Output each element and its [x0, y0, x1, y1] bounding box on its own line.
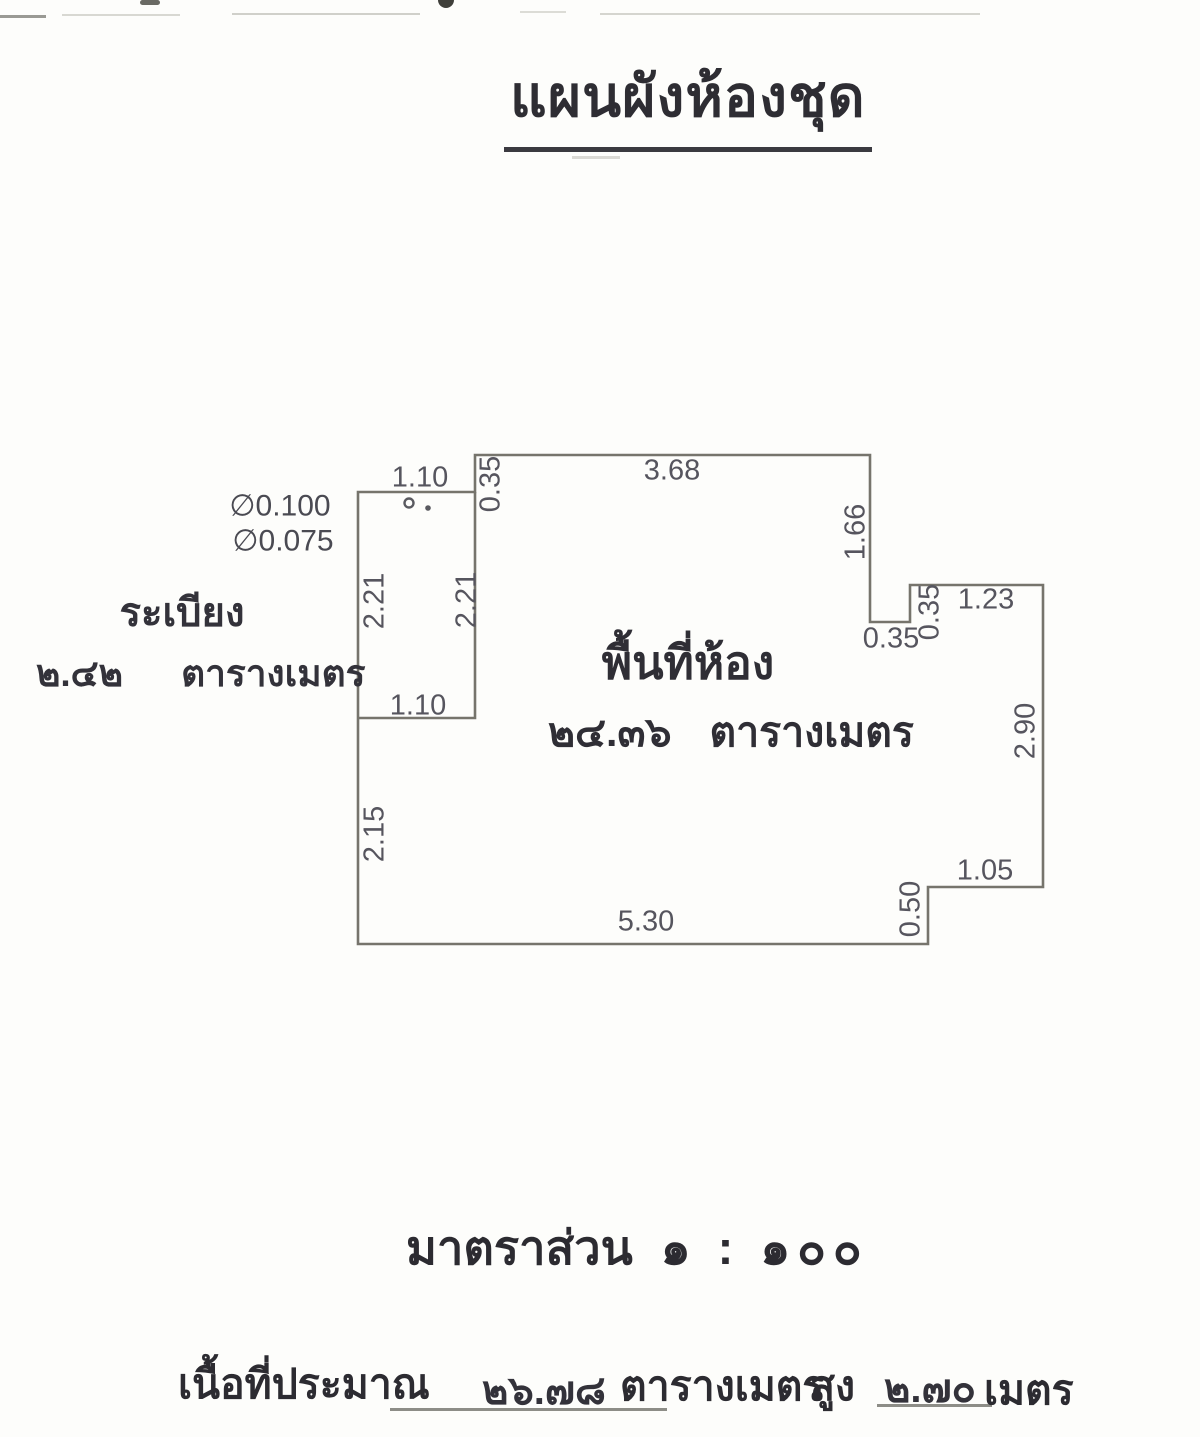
dim-balcony-left: 2.21 — [359, 573, 392, 629]
pipe-diameter-label: ∅0.100 — [229, 489, 330, 524]
drain-pipe-icon — [425, 505, 431, 511]
balcony-area-value: ๒.๔๒ — [36, 644, 123, 703]
balcony-area-unit: ตารางเมตร — [181, 644, 365, 703]
room-area: ๒๔.๓๖ ตารางเมตร — [548, 700, 914, 765]
dim-notch-top: 1.23 — [958, 584, 1014, 617]
footer-height-unit: เมตร — [984, 1358, 1074, 1423]
dim-notch-bottom: 0.35 — [863, 623, 919, 656]
dim-right-upper: 1.66 — [840, 504, 873, 560]
scale-label: มาตราส่วน — [406, 1210, 633, 1285]
dim-step-side: 0.50 — [895, 881, 928, 937]
scanned-floorplan-page: แผนผังห้องชุด ∅0.100 ∅0.075 1.10 0.35 3.… — [0, 0, 1200, 1437]
dim-bottom: 5.30 — [618, 906, 674, 939]
dim-notch-side: 0.35 — [914, 584, 947, 640]
footer-area-unit: ตารางเมตร — [620, 1354, 824, 1419]
balcony-area: ๒.๔๒ ตารางเมตร — [36, 644, 366, 703]
footer-area-value: ๒๖.๗๘ — [482, 1358, 606, 1422]
footer-height-value: ๒.๗๐ — [884, 1356, 976, 1420]
balcony-label: ระเบียง — [120, 580, 245, 644]
footer-height-label: สูง — [810, 1354, 855, 1419]
dim-step-top: 1.05 — [957, 855, 1013, 888]
drain-pipe-icon — [405, 499, 414, 508]
room-area-unit: ตารางเมตร — [710, 700, 914, 765]
dim-left-lower: 2.15 — [359, 806, 392, 862]
dim-right-lower: 2.90 — [1010, 703, 1043, 759]
dim-balcony-bottom: 1.10 — [390, 690, 446, 723]
dim-entry-jog: 0.35 — [475, 456, 508, 512]
dim-balcony-top: 1.10 — [392, 462, 448, 495]
dim-balcony-right: 2.21 — [451, 572, 484, 628]
room-area-value: ๒๔.๓๖ — [548, 700, 672, 765]
scale-value: ๑ : ๑๐๐ — [661, 1210, 869, 1285]
dim-top: 3.68 — [644, 455, 700, 488]
room-label: พื้นที่ห้อง — [602, 627, 775, 700]
pipe-diameter-label: ∅0.075 — [232, 524, 333, 559]
scale-line: มาตราส่วน ๑ : ๑๐๐ — [406, 1210, 869, 1285]
footer-height-underline — [877, 1404, 992, 1407]
